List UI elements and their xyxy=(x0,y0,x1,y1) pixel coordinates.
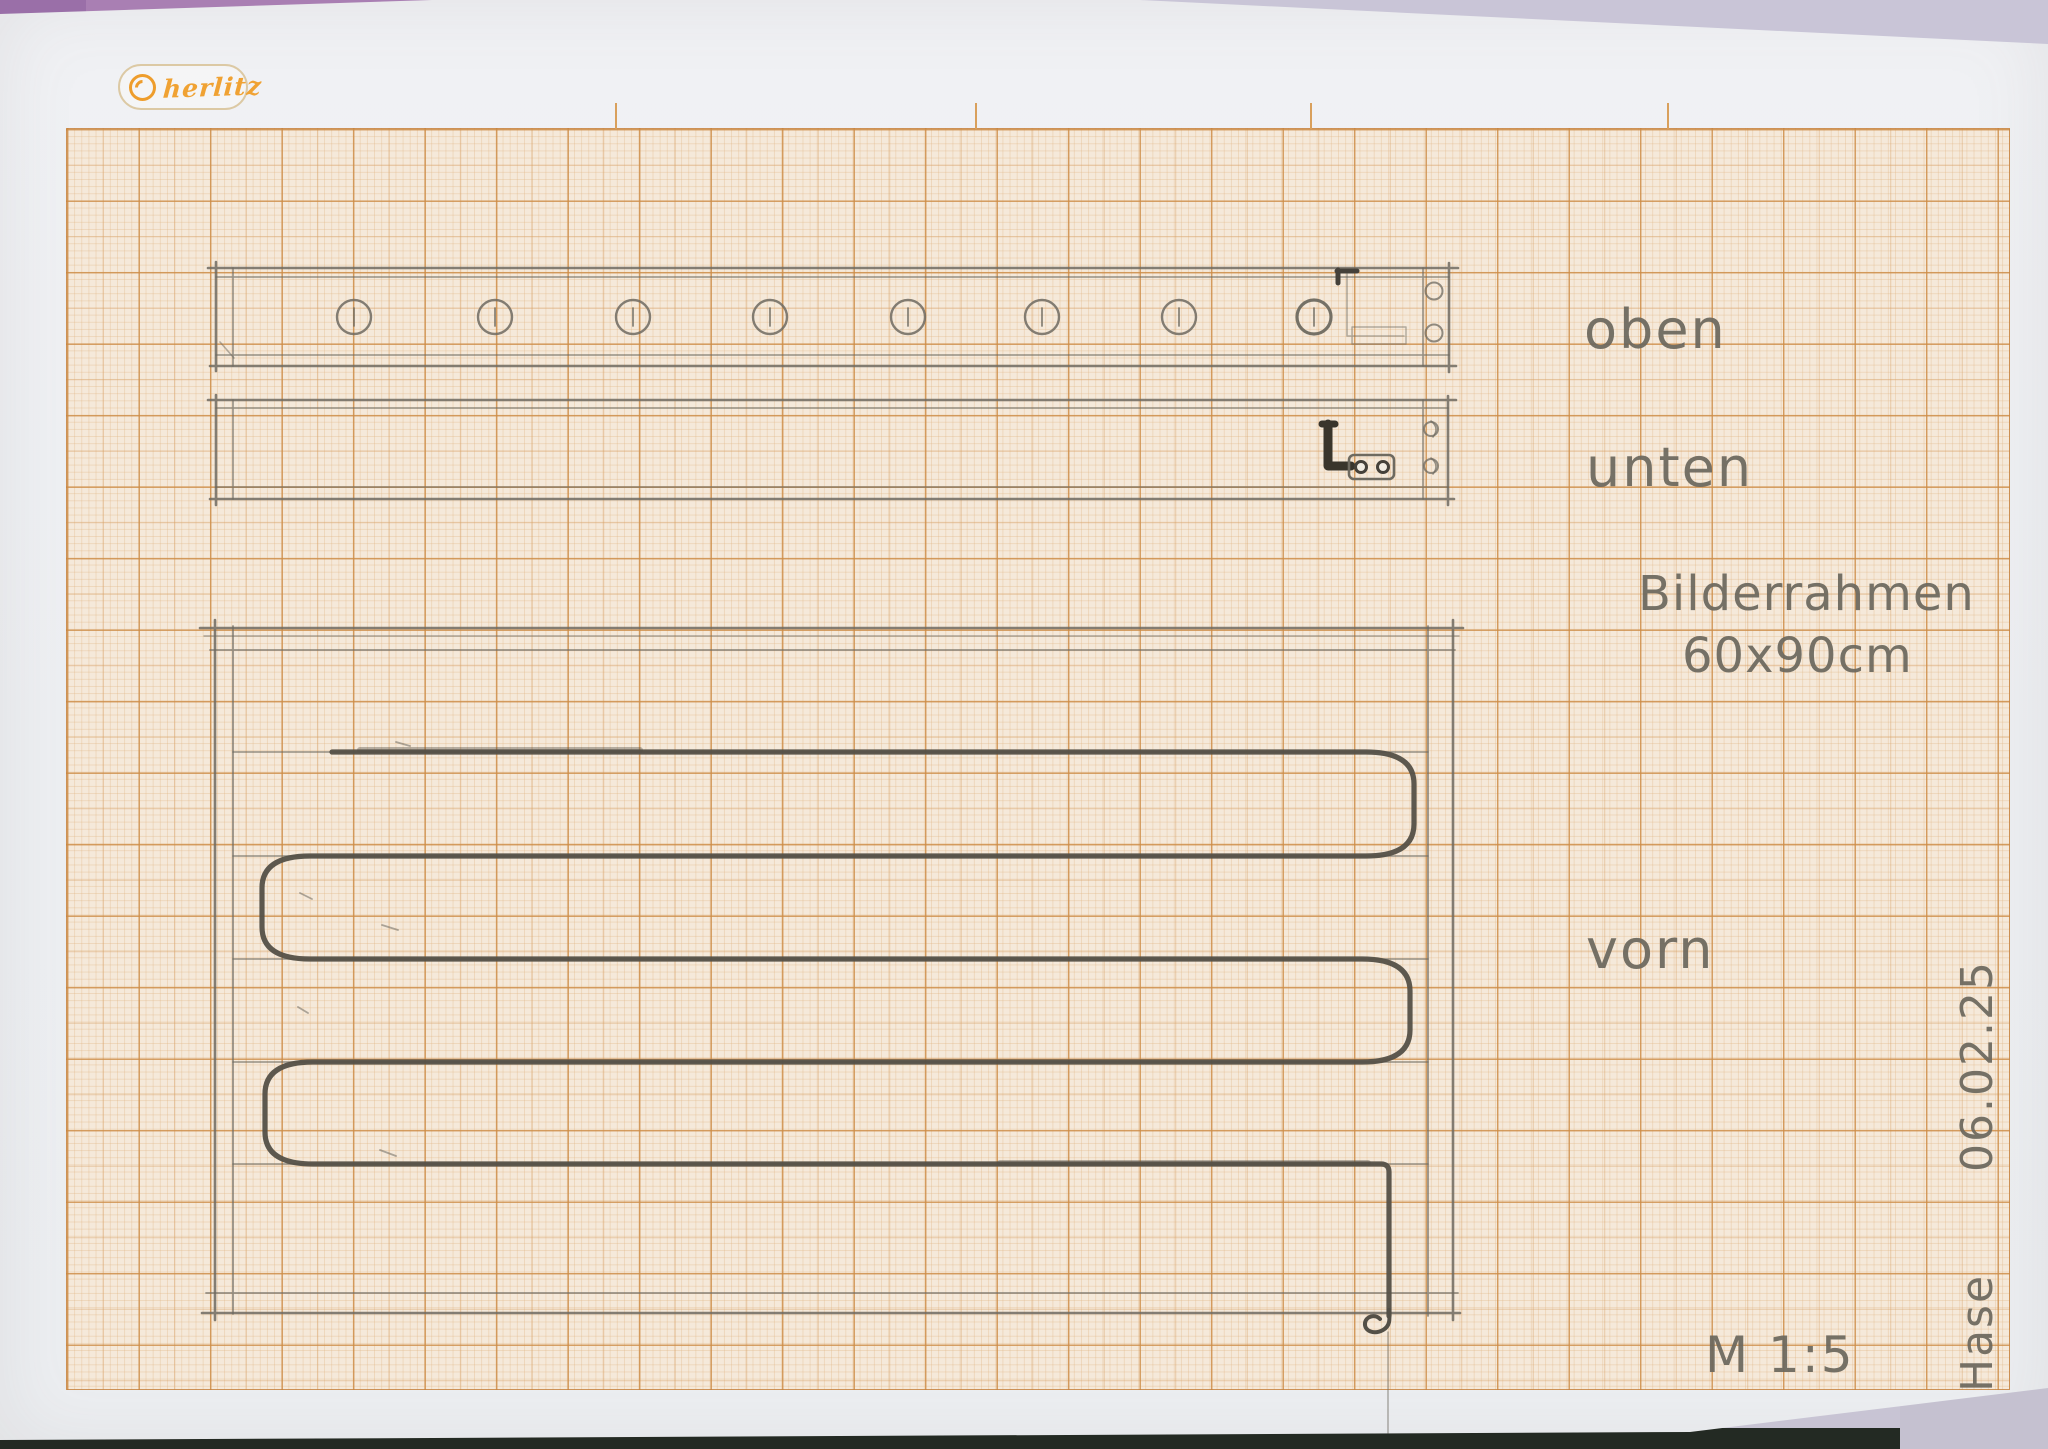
label-dimensions: 60x90cm xyxy=(1682,628,1913,684)
paper-sheet: herlitz xyxy=(0,0,2048,1449)
label-author: Hase xyxy=(1952,1274,2003,1392)
label-scale: M 1:5 xyxy=(1705,1326,1855,1384)
vorn-view-drawing xyxy=(200,620,1463,1440)
bold-angle-bracket xyxy=(1328,424,1351,466)
end-cap-hole xyxy=(1426,283,1443,300)
mounting-plate xyxy=(1349,455,1394,479)
end-cap-keyholes xyxy=(1424,421,1438,474)
label-author-date: Hase 06.02.25 xyxy=(1952,960,2003,1392)
label-unten: unten xyxy=(1586,436,1753,499)
label-title: Bilderrahmen xyxy=(1638,566,1975,622)
oben-view-drawing xyxy=(208,262,1458,372)
label-oben: oben xyxy=(1584,298,1727,361)
screw-holes xyxy=(337,300,1331,334)
label-date: 06.02.25 xyxy=(1952,960,2003,1172)
unten-view-drawing xyxy=(208,395,1456,505)
hanger-bracket-faint xyxy=(1347,274,1406,344)
label-vorn: vorn xyxy=(1586,918,1714,981)
pencil-sketch xyxy=(0,0,2048,1449)
end-cap-hole xyxy=(1426,325,1443,342)
serpentine-wire xyxy=(262,752,1414,1316)
